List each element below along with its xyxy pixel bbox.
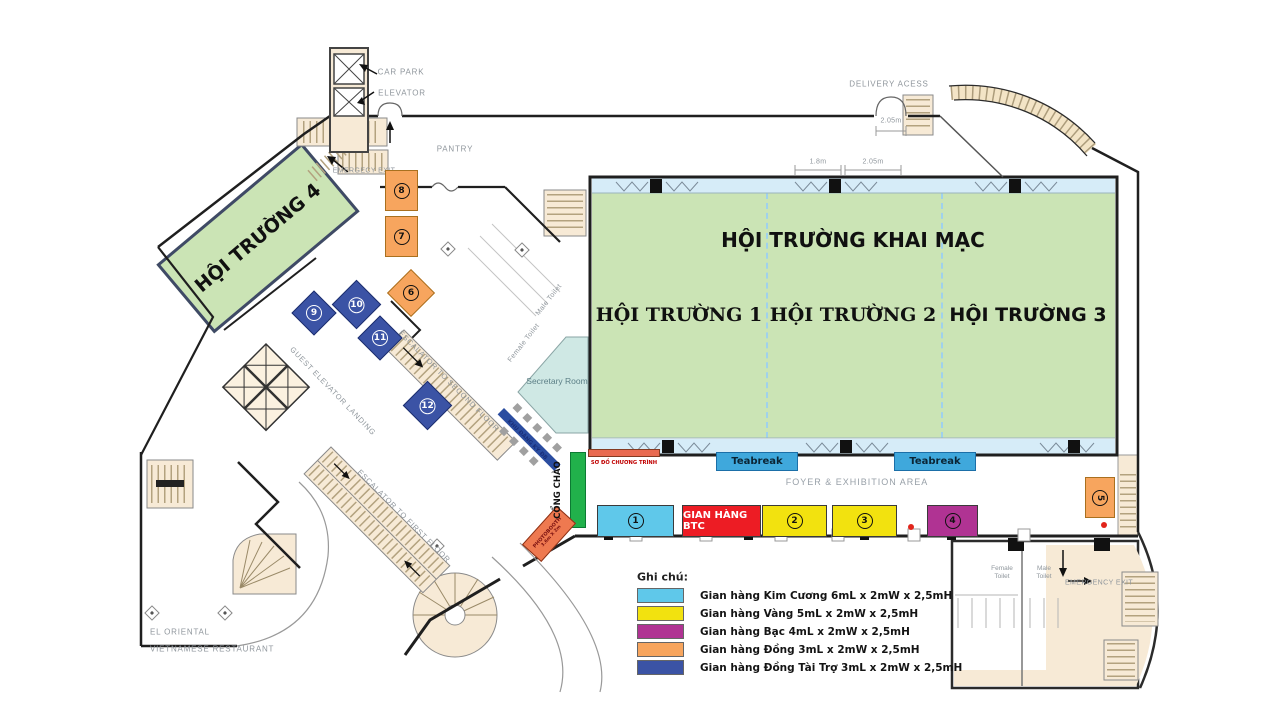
teabreak-box-1: Teabreak	[716, 452, 798, 471]
curved-gangway	[949, 85, 1095, 156]
car-park-label: CAR PARK	[378, 68, 425, 77]
legend-label: Gian hàng Đồng 3mL x 2mW x 2,5mH	[700, 644, 920, 656]
hall-opening-label: HỘI TRƯỜNG KHAI MẠC	[721, 228, 985, 252]
booth-11: 11	[357, 315, 402, 360]
escalator-first-label: ESCALATOR TO FIRST FLOOR	[356, 468, 453, 565]
booth-4-number: 4	[945, 513, 961, 529]
restaurant-label-line2: VIETNAMESE RESTAURANT	[150, 645, 274, 654]
teabreak-box-2: Teabreak	[894, 452, 976, 471]
legend-label: Gian hàng Đồng Tài Trợ 3mL x 2mW x 2,5mH	[700, 662, 962, 674]
legend-item-vang: Gian hàng Vàng 5mL x 2mW x 2,5mH	[637, 606, 918, 621]
legend-swatch	[637, 624, 684, 639]
secretary-room-label: Secretary Room	[526, 376, 588, 386]
legend-swatch	[637, 642, 684, 657]
male-toilet-label-br: Male Toilet	[1029, 565, 1059, 581]
booth-3: 3	[832, 505, 897, 537]
legend-swatch	[637, 588, 684, 603]
booth-1-number: 1	[628, 513, 644, 529]
cong-chao-bar	[570, 452, 586, 528]
khu-dang-ky-label: KHU ĐĂNG KÝ ĐB	[506, 419, 549, 462]
booth-9-number: 9	[306, 305, 322, 321]
female-toilet-label-pantry: Female Toilet	[507, 322, 541, 363]
booth-11-number: 11	[372, 330, 388, 346]
booth-1: 1	[597, 505, 674, 537]
floor-plan: HỘI TRƯỜNG 4	[0, 0, 1280, 720]
booth-btc-label: GIAN HÀNG BTC	[683, 510, 760, 532]
booth-7-number: 7	[394, 229, 410, 245]
booth-5: 5	[1085, 477, 1115, 518]
photobooth-box: PHOTOBOOTH 3.6m X 2m	[522, 506, 576, 562]
arrows	[327, 64, 394, 172]
legend-swatch	[637, 660, 684, 675]
booth-btc: GIAN HÀNG BTC	[682, 505, 761, 537]
escalator-second-label: ESCALATOR TO SECOND FLOOR	[397, 329, 502, 434]
booth-12: 12	[403, 381, 452, 430]
booth-8: 8	[385, 170, 418, 211]
car-park-elevator	[330, 48, 368, 152]
female-toilet-label-br: Female Toilet	[984, 565, 1020, 581]
hall-4-label: HỘI TRƯỜNG 4	[191, 179, 326, 297]
hall-door-dimension-right: 2.05m	[863, 159, 884, 166]
legend-item-bac: Gian hàng Bạc 4mL x 2mW x 2,5mH	[637, 624, 910, 639]
booth-5-number: 5	[1092, 490, 1108, 506]
escalator-first-floor	[304, 447, 450, 593]
so-do-strip	[588, 449, 660, 457]
hall-2-label: HỘI TRƯỜNG 2	[770, 304, 936, 326]
dimension-lines	[795, 126, 906, 175]
booth-7: 7	[385, 216, 418, 257]
escalator-second-floor	[386, 330, 516, 460]
guest-elevator-landing-label: GUEST ELEVATOR LANDING	[288, 345, 378, 437]
booth-10-number: 10	[349, 297, 365, 313]
legend-swatch	[637, 606, 684, 621]
hall-3-label: HỘI TRƯỜNG 3	[949, 304, 1106, 326]
booth-8-number: 8	[394, 183, 410, 199]
hall-top-band	[592, 178, 1115, 193]
booth-6: 6	[387, 269, 435, 317]
legend-item-kim-cuong: Gian hàng Kim Cương 6mL x 2mW x 2,5mH	[637, 588, 952, 603]
pantry-label: PANTRY	[437, 145, 474, 154]
teabreak-label: Teabreak	[731, 456, 782, 467]
booth-2-number: 2	[787, 513, 803, 529]
booth-9: 9	[291, 290, 336, 335]
legend-title: Ghi chú:	[637, 571, 688, 584]
cong-chao-label: CỔNG CHÀO	[553, 461, 563, 519]
fire-extinguisher-icon	[1101, 522, 1107, 528]
so-do-label: SƠ ĐỒ CHƯƠNG TRÌNH	[591, 460, 657, 466]
legend-item-dong-tai-tro: Gian hàng Đồng Tài Trợ 3mL x 2mW x 2,5mH	[637, 660, 962, 675]
booth-3-number: 3	[857, 513, 873, 529]
legend-label: Gian hàng Bạc 4mL x 2mW x 2,5mH	[700, 626, 910, 638]
delivery-door-dimension: 2.05m	[881, 118, 902, 125]
delivery-access-label: DELIVERY ACESS	[849, 80, 928, 89]
legend-label: Gian hàng Vàng 5mL x 2mW x 2,5mH	[700, 608, 918, 620]
fire-extinguisher-icon	[908, 524, 914, 530]
foyer-label: FOYER & EXHIBITION AREA	[786, 477, 929, 487]
bottom-right-block	[952, 532, 1158, 688]
booth-12-number: 12	[420, 398, 436, 414]
elevator-label: ELEVATOR	[378, 89, 426, 98]
legend-label: Gian hàng Kim Cương 6mL x 2mW x 2,5mH	[700, 590, 952, 602]
legend-item-dong: Gian hàng Đồng 3mL x 2mW x 2,5mH	[637, 642, 920, 657]
emergency-exit-bottom-label: EMERGENCY EXIT	[1065, 580, 1133, 587]
teabreak-label: Teabreak	[909, 456, 960, 467]
restaurant-label-line1: EL ORIENTAL	[150, 628, 210, 637]
hall-door-dimension-left: 1.8m	[810, 159, 827, 166]
booth-2: 2	[762, 505, 827, 537]
booth-4: 4	[927, 505, 978, 537]
hall-1-label: HỘI TRƯỜNG 1	[596, 304, 762, 326]
male-toilet-label-pantry: Male Toilet	[535, 283, 564, 317]
booth-6-number: 6	[403, 285, 419, 301]
hall-bottom-band	[592, 439, 1115, 454]
